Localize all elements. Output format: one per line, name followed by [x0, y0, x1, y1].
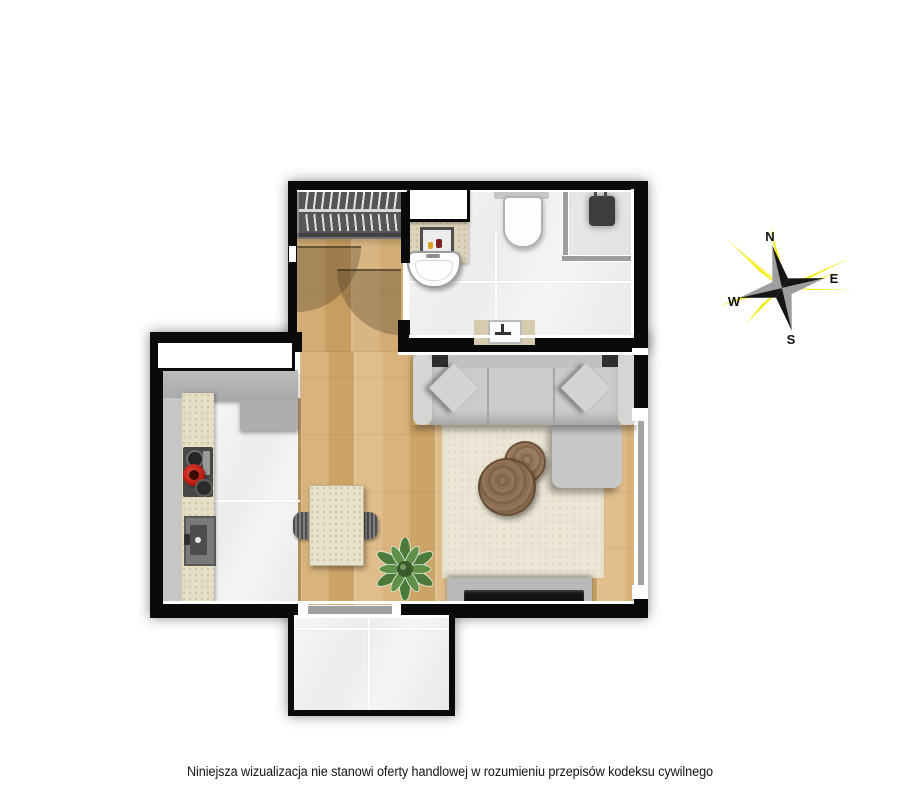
shower-glass-vertical — [562, 189, 569, 259]
wall-bottom-left — [150, 604, 307, 618]
sink-faucet — [184, 534, 190, 545]
kitchen-counter-stub — [240, 400, 298, 430]
floor-seam — [298, 398, 301, 606]
balcony-door-jamb-left — [298, 602, 308, 618]
compass-label-north: N — [765, 229, 774, 244]
outline-bath-bottom-upper — [409, 335, 632, 338]
entrance-door — [407, 187, 470, 222]
window-right-bottom-cap — [632, 585, 648, 599]
sofa-back-shadow-right — [602, 354, 618, 367]
cooktop-burner-2 — [195, 479, 213, 497]
wardrobe-shadow — [297, 233, 403, 247]
cooktop — [183, 447, 213, 497]
wall-kitchen-top — [150, 332, 300, 340]
sofa-back-shadow-left — [432, 354, 448, 367]
wall-kitchen-left — [150, 332, 163, 618]
wall-right-living — [634, 355, 648, 408]
wardrobe — [297, 186, 410, 239]
sink-drain — [195, 537, 201, 543]
sofa-seam-2 — [553, 368, 555, 425]
wardrobe-hangers-top — [301, 190, 402, 209]
disclaimer-text: Niniejsza wizualizacja nie stanowi ofert… — [27, 764, 873, 779]
compass-label-east: E — [830, 271, 839, 286]
balcony-grout-v — [368, 616, 370, 712]
coffee-table-large — [478, 458, 536, 516]
balcony-door-jamb-right — [392, 602, 401, 618]
bathroom-sink-cabinet — [474, 320, 535, 345]
washbasin-tap — [426, 254, 440, 258]
compass-rose: N E W S — [720, 220, 855, 355]
wall-left-top-block — [288, 181, 297, 346]
outline-balcony-top — [294, 615, 449, 618]
balcony-floor — [294, 616, 449, 712]
shower-glass-horizontal — [562, 255, 636, 262]
wardrobe-hangers-bottom — [301, 214, 402, 231]
wall-left-notch — [289, 246, 296, 262]
kitchen-counter-edge — [163, 398, 182, 605]
potted-plant — [374, 538, 436, 600]
sofa-chaise — [552, 423, 622, 488]
kitchen-sink — [184, 516, 216, 566]
outline-bath-bottom-lower — [398, 352, 634, 355]
window-right-top-cap — [632, 408, 648, 421]
balcony-sliding-door — [308, 605, 392, 615]
balcony-wall-left — [288, 614, 294, 716]
mirror-item-red — [436, 239, 442, 248]
toilet-bowl — [503, 196, 543, 248]
shower-head — [589, 196, 615, 226]
kitchen-floor-grout — [214, 500, 300, 502]
mirror-item-yellow — [428, 242, 433, 249]
sofa-seam-1 — [487, 368, 489, 425]
kitchen-worktop — [182, 393, 214, 605]
outline-bath-right — [631, 189, 634, 335]
floorplan-page: N E W S Niniejsza wizualizacja nie stano… — [0, 0, 900, 795]
kitchen-window — [155, 340, 295, 371]
pot-lid — [189, 470, 199, 480]
compass-label-south: S — [787, 332, 796, 347]
wall-right-junction-notch — [632, 348, 648, 355]
window-right-glass — [637, 421, 645, 585]
balcony-wall-right — [449, 614, 455, 716]
wardrobe-rail — [299, 209, 404, 212]
compass-star — [729, 235, 835, 341]
wall-right-bathroom — [634, 181, 648, 352]
balcony-grout-h — [294, 628, 449, 630]
washbasin-inner — [415, 260, 453, 281]
compass-label-west: W — [728, 294, 741, 309]
balcony-wall-bottom — [288, 710, 455, 716]
kitchen-counter-top — [157, 370, 298, 400]
sofa — [413, 352, 637, 425]
dining-table — [309, 485, 364, 566]
